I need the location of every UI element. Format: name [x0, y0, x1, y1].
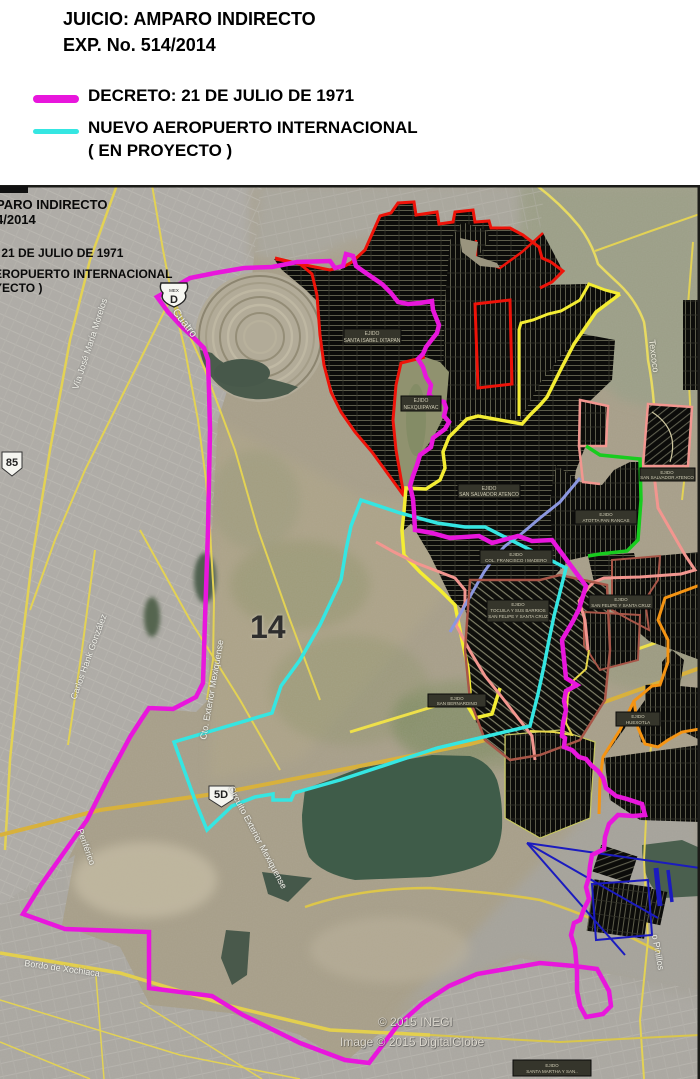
- svg-text:PARO INDIRECTO: PARO INDIRECTO: [0, 197, 107, 212]
- svg-text:EJIDO: EJIDO: [509, 552, 523, 557]
- svg-text:: 21 DE JULIO DE 1971: : 21 DE JULIO DE 1971: [0, 246, 124, 260]
- svg-text:EJIDO: EJIDO: [511, 602, 525, 607]
- svg-text:SAN FELIPE Y SANTA CRUZ: SAN FELIPE Y SANTA CRUZ: [488, 614, 548, 619]
- svg-text:EROPUERTO INTERNACIONAL: EROPUERTO INTERNACIONAL: [0, 267, 172, 281]
- svg-text:EJIDO: EJIDO: [614, 597, 628, 602]
- svg-text:SAN FELIPE Y SANTA CRUZ: SAN FELIPE Y SANTA CRUZ: [591, 603, 651, 608]
- svg-text:5D: 5D: [214, 789, 228, 801]
- svg-text:D: D: [170, 294, 178, 306]
- svg-text:ATOTTA PAN RANCAS: ATOTTA PAN RANCAS: [583, 518, 630, 523]
- svg-text:EJIDO: EJIDO: [631, 714, 645, 719]
- svg-text:SANTA ISABEL IXTAPAN: SANTA ISABEL IXTAPAN: [344, 338, 401, 344]
- svg-text:HUEXOTLA: HUEXOTLA: [626, 720, 650, 725]
- svg-text:SAN SALVADOR ATENCO: SAN SALVADOR ATENCO: [640, 475, 694, 480]
- svg-text:YECTO ): YECTO ): [0, 281, 42, 295]
- svg-text:SAN BERNARDINO: SAN BERNARDINO: [437, 701, 478, 706]
- svg-text:NEXQUIPAYAC: NEXQUIPAYAC: [403, 405, 438, 411]
- svg-text:EJIDO: EJIDO: [414, 398, 429, 404]
- svg-text:SAN SALVADOR ATENCO: SAN SALVADOR ATENCO: [459, 492, 519, 498]
- svg-text:14: 14: [250, 609, 286, 645]
- svg-text:COL. FRANCISCO I MADERO: COL. FRANCISCO I MADERO: [485, 558, 547, 563]
- svg-text:EJIDO: EJIDO: [365, 331, 380, 337]
- svg-text:TOCUILA Y SUS BARRIOS: TOCUILA Y SUS BARRIOS: [490, 608, 545, 613]
- svg-text:EJIDO: EJIDO: [599, 512, 613, 517]
- svg-text:EJIDO: EJIDO: [545, 1063, 559, 1068]
- svg-text:4/2014: 4/2014: [0, 212, 37, 227]
- svg-text:© 2015 INEGI: © 2015 INEGI: [378, 1015, 453, 1029]
- svg-text:SANTA MARTHA Y SAN..: SANTA MARTHA Y SAN..: [526, 1069, 577, 1074]
- svg-text:85: 85: [6, 457, 18, 469]
- svg-text:Image © 2015 DigitalGlobe: Image © 2015 DigitalGlobe: [340, 1035, 485, 1049]
- svg-text:MEX: MEX: [169, 288, 179, 293]
